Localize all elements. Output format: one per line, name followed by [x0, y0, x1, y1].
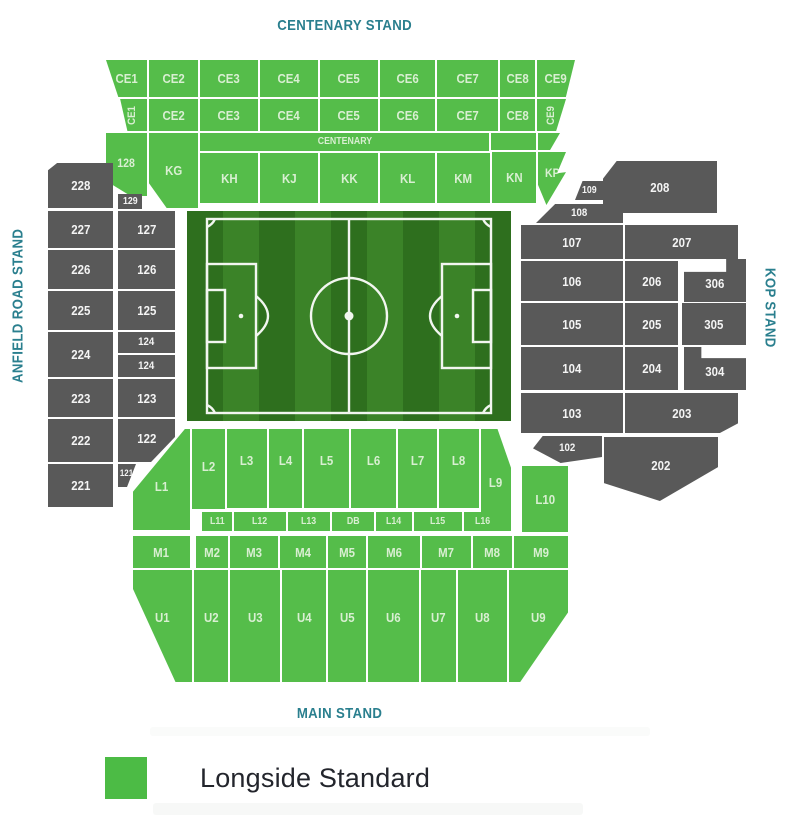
section-label: L4 — [279, 454, 292, 467]
section-207: 207 — [625, 225, 738, 259]
section-U9[interactable]: U9 — [509, 570, 568, 682]
section-label: M4 — [295, 546, 311, 559]
section-label: CE5 — [338, 72, 360, 85]
section-label: KP — [545, 167, 560, 179]
section-204: 204 — [625, 347, 678, 390]
section-label: 205 — [642, 318, 661, 331]
section-U2[interactable]: U2 — [194, 570, 228, 682]
section-label: U1 — [155, 611, 170, 624]
section-label: CE9 — [546, 106, 557, 125]
section-CE6-lower[interactable]: CE6 — [380, 99, 435, 131]
section-223: 223 — [48, 379, 113, 417]
section-label: 103 — [562, 407, 581, 420]
section-label: 208 — [650, 181, 669, 194]
section-205: 205 — [625, 303, 678, 345]
section-L2[interactable]: L2 — [192, 429, 225, 509]
section-KP[interactable]: KP — [538, 152, 566, 205]
faded-artifact-top — [150, 727, 650, 736]
section-label: M8 — [485, 546, 501, 559]
section-label: KH — [221, 172, 238, 185]
section-label: CE1 — [128, 106, 139, 125]
section-L4[interactable]: L4 — [269, 429, 302, 508]
section-label: M5 — [339, 546, 355, 559]
section-M2[interactable]: M2 — [196, 536, 228, 568]
legend: Longside Standard — [105, 757, 430, 799]
section-label: L3 — [240, 454, 253, 467]
section-label: KJ — [282, 172, 297, 185]
section-KN[interactable]: KN — [492, 152, 536, 203]
section-109: 109 — [575, 181, 604, 200]
section-M4[interactable]: M4 — [280, 536, 326, 568]
section-label: 127 — [137, 223, 156, 236]
section-label: U9 — [531, 611, 546, 624]
section-label: L16 — [475, 517, 490, 527]
section-DB[interactable]: DB — [332, 512, 374, 531]
section-306: 306 — [684, 259, 746, 302]
section-label: 204 — [642, 362, 661, 375]
section-label: L7 — [411, 454, 424, 467]
section-label: CE6 — [396, 72, 418, 85]
section-label: 104 — [562, 362, 581, 375]
section-U3[interactable]: U3 — [230, 570, 280, 682]
section-KL[interactable]: KL — [380, 153, 435, 203]
section-label: M3 — [246, 546, 262, 559]
section-label: M7 — [439, 546, 455, 559]
section-228: 228 — [48, 163, 113, 208]
section-label: 107 — [562, 236, 581, 249]
section-label: L8 — [452, 454, 465, 467]
section-129: 129 — [118, 194, 142, 209]
section-label: L2 — [202, 460, 215, 473]
section-CE8-upper[interactable]: CE8 — [500, 60, 535, 97]
section-304: 304 — [684, 347, 746, 390]
section-CE1-lower[interactable]: CE1 — [119, 99, 147, 131]
section-KK[interactable]: KK — [320, 153, 378, 203]
section-L13[interactable]: L13 — [288, 512, 330, 531]
section-CE7-lower[interactable]: CE7 — [437, 99, 498, 131]
section-label: CE8 — [506, 109, 528, 122]
section-221: 221 — [48, 464, 113, 507]
section-L14[interactable]: L14 — [376, 512, 412, 531]
section-label: 224 — [71, 348, 90, 361]
legend-label: Longside Standard — [200, 763, 430, 794]
section-L11[interactable]: L11 — [202, 512, 232, 531]
section-label: 126 — [137, 263, 156, 276]
section-label: M9 — [533, 546, 549, 559]
section-M6[interactable]: M6 — [368, 536, 420, 568]
section-305: 305 — [682, 303, 746, 345]
faded-artifact-bottom — [153, 803, 583, 815]
section-label: CE5 — [338, 109, 360, 122]
section-label: 206 — [642, 275, 661, 288]
section-224: 224 — [48, 332, 113, 377]
section-label: CE7 — [456, 109, 478, 122]
section-label: L12 — [252, 517, 267, 527]
section-CE3-upper[interactable]: CE3 — [200, 60, 258, 97]
section-label: U8 — [475, 611, 490, 624]
section-label: L14 — [386, 517, 401, 527]
section-label: L5 — [320, 454, 333, 467]
stand-label-centenary: CENTENARY STAND — [150, 17, 540, 34]
stadium-seat-map: CENTENARY STAND ANFIELD ROAD STAND KOP S… — [0, 0, 799, 822]
section-label: L10 — [535, 493, 555, 506]
section-CE9-lower[interactable]: CE9 — [537, 99, 566, 131]
section-label: 106 — [562, 275, 581, 288]
section-label: 123 — [137, 392, 156, 405]
stand-label-anfield-road: ANFIELD ROAD STAND — [10, 234, 27, 394]
section-label: 102 — [559, 443, 575, 454]
section-M1[interactable]: M1 — [133, 536, 190, 568]
section-KH[interactable]: KH — [200, 153, 258, 203]
section-M3[interactable]: M3 — [230, 536, 278, 568]
section-U4[interactable]: U4 — [282, 570, 326, 682]
section-label: 121 — [120, 469, 133, 478]
section-label: CE9 — [545, 72, 567, 85]
section-107: 107 — [521, 225, 623, 259]
section-label: CE4 — [278, 72, 300, 85]
section-label: 105 — [562, 318, 581, 331]
stand-label-main: MAIN STAND — [145, 705, 535, 722]
section-label: U6 — [386, 611, 401, 624]
section-CE4-lower[interactable]: CE4 — [260, 99, 318, 131]
section-label: 122 — [137, 432, 156, 445]
section-label: 109 — [582, 186, 597, 196]
section-202: 202 — [604, 437, 718, 501]
section-label: U3 — [248, 611, 263, 624]
football-pitch — [187, 211, 511, 421]
section-127: 127 — [118, 211, 175, 248]
section-label: 129 — [123, 197, 138, 207]
section-label: 125 — [137, 304, 156, 317]
section-label: KL — [400, 172, 415, 185]
section-108: 108 — [536, 204, 623, 223]
section-label: L6 — [367, 454, 380, 467]
section-121: 121 — [118, 464, 136, 487]
section-L6[interactable]: L6 — [351, 429, 396, 508]
section-label: 124 — [138, 337, 154, 348]
section-label: 304 — [705, 365, 724, 378]
section-label: 203 — [672, 407, 691, 420]
section-L16[interactable]: L16 — [464, 512, 502, 531]
section-206: 206 — [625, 261, 678, 301]
section-label: M1 — [154, 546, 170, 559]
section-L15[interactable]: L15 — [414, 512, 462, 531]
section-label: CE2 — [162, 109, 184, 122]
section-CE2-upper[interactable]: CE2 — [149, 60, 198, 97]
section-L12[interactable]: L12 — [234, 512, 286, 531]
section-label: L13 — [301, 517, 316, 527]
section-226: 226 — [48, 250, 113, 289]
section-label: CE8 — [506, 72, 528, 85]
section-L10[interactable]: L10 — [522, 466, 568, 532]
section-label: CE1 — [115, 72, 137, 85]
section-label: 306 — [705, 277, 724, 290]
section-104: 104 — [521, 347, 623, 390]
section-CE5-lower[interactable]: CE5 — [320, 99, 378, 131]
section-CE2-lower[interactable]: CE2 — [149, 99, 198, 131]
section-label: L9 — [489, 476, 502, 489]
section-label: CE2 — [162, 72, 184, 85]
section-CE5-upper[interactable]: CE5 — [320, 60, 378, 97]
stand-label-kop: KOP STAND — [762, 253, 779, 363]
section-126: 126 — [118, 250, 175, 289]
section-label: CE7 — [456, 72, 478, 85]
section-label: L15 — [430, 517, 445, 527]
section-KG[interactable]: KG — [149, 133, 198, 208]
section-CE3-lower[interactable]: CE3 — [200, 99, 258, 131]
section-124-upper: 124 — [118, 332, 175, 353]
section-103: 103 — [521, 393, 623, 433]
section-label: 207 — [672, 236, 691, 249]
section-label: KK — [341, 172, 358, 185]
section-label: 108 — [571, 208, 587, 219]
section-102: 102 — [533, 436, 602, 463]
section-label: U2 — [204, 611, 219, 624]
section-222: 222 — [48, 419, 113, 462]
section-label: 221 — [71, 479, 90, 492]
section-125: 125 — [118, 291, 175, 330]
section-label: M6 — [386, 546, 402, 559]
section-label: 226 — [71, 263, 90, 276]
section-CE7-upper[interactable]: CE7 — [437, 60, 498, 97]
section-filler-kn[interactable] — [491, 133, 536, 150]
section-label: CE3 — [218, 109, 240, 122]
section-CE8-lower[interactable]: CE8 — [500, 99, 535, 131]
section-label: 222 — [71, 434, 90, 447]
section-KJ[interactable]: KJ — [260, 153, 318, 203]
section-filler-kp[interactable] — [538, 133, 560, 150]
section-label: CE6 — [396, 109, 418, 122]
section-label: KG — [165, 164, 182, 177]
section-label: 225 — [71, 304, 90, 317]
section-KM[interactable]: KM — [437, 153, 490, 203]
section-label: 124 — [138, 361, 154, 372]
section-124-lower: 124 — [118, 355, 175, 377]
section-label: M2 — [204, 546, 220, 559]
section-L7[interactable]: L7 — [398, 429, 437, 508]
section-label: KM — [455, 172, 473, 185]
section-label: DB — [347, 517, 360, 527]
section-label: CENTENARY — [317, 137, 371, 147]
section-label: 223 — [71, 392, 90, 405]
section-105: 105 — [521, 303, 623, 345]
section-CE6-upper[interactable]: CE6 — [380, 60, 435, 97]
section-106: 106 — [521, 261, 623, 301]
section-label: 128 — [118, 157, 136, 169]
section-label: U5 — [340, 611, 355, 624]
legend-swatch-longside-standard — [105, 757, 147, 799]
section-M5[interactable]: M5 — [328, 536, 366, 568]
section-M7[interactable]: M7 — [422, 536, 471, 568]
section-label: CE3 — [218, 72, 240, 85]
section-label: U4 — [297, 611, 312, 624]
section-U8[interactable]: U8 — [458, 570, 507, 682]
section-U7[interactable]: U7 — [421, 570, 456, 682]
section-U6[interactable]: U6 — [368, 570, 419, 682]
section-label: L11 — [210, 517, 225, 527]
section-225: 225 — [48, 291, 113, 330]
section-CE1-upper[interactable]: CE1 — [106, 60, 147, 97]
section-227: 227 — [48, 211, 113, 248]
section-label: L1 — [155, 480, 168, 493]
section-label: 227 — [71, 223, 90, 236]
section-label: 305 — [704, 318, 723, 331]
section-label: 202 — [651, 459, 670, 472]
section-L3[interactable]: L3 — [227, 429, 267, 508]
section-123: 123 — [118, 379, 175, 417]
section-CE9-upper[interactable]: CE9 — [537, 60, 575, 97]
section-label: CE4 — [278, 109, 300, 122]
section-L8[interactable]: L8 — [439, 429, 479, 508]
section-203: 203 — [625, 393, 738, 433]
section-label: 228 — [71, 179, 90, 192]
section-CE4-upper[interactable]: CE4 — [260, 60, 318, 97]
section-U1[interactable]: U1 — [133, 570, 192, 682]
section-label: KN — [506, 171, 523, 184]
section-M9[interactable]: M9 — [514, 536, 568, 568]
section-L5[interactable]: L5 — [304, 429, 349, 508]
section-label: U7 — [431, 611, 446, 624]
section-M8[interactable]: M8 — [473, 536, 512, 568]
section-centenary-banner[interactable]: CENTENARY — [200, 133, 489, 151]
section-U5[interactable]: U5 — [328, 570, 366, 682]
